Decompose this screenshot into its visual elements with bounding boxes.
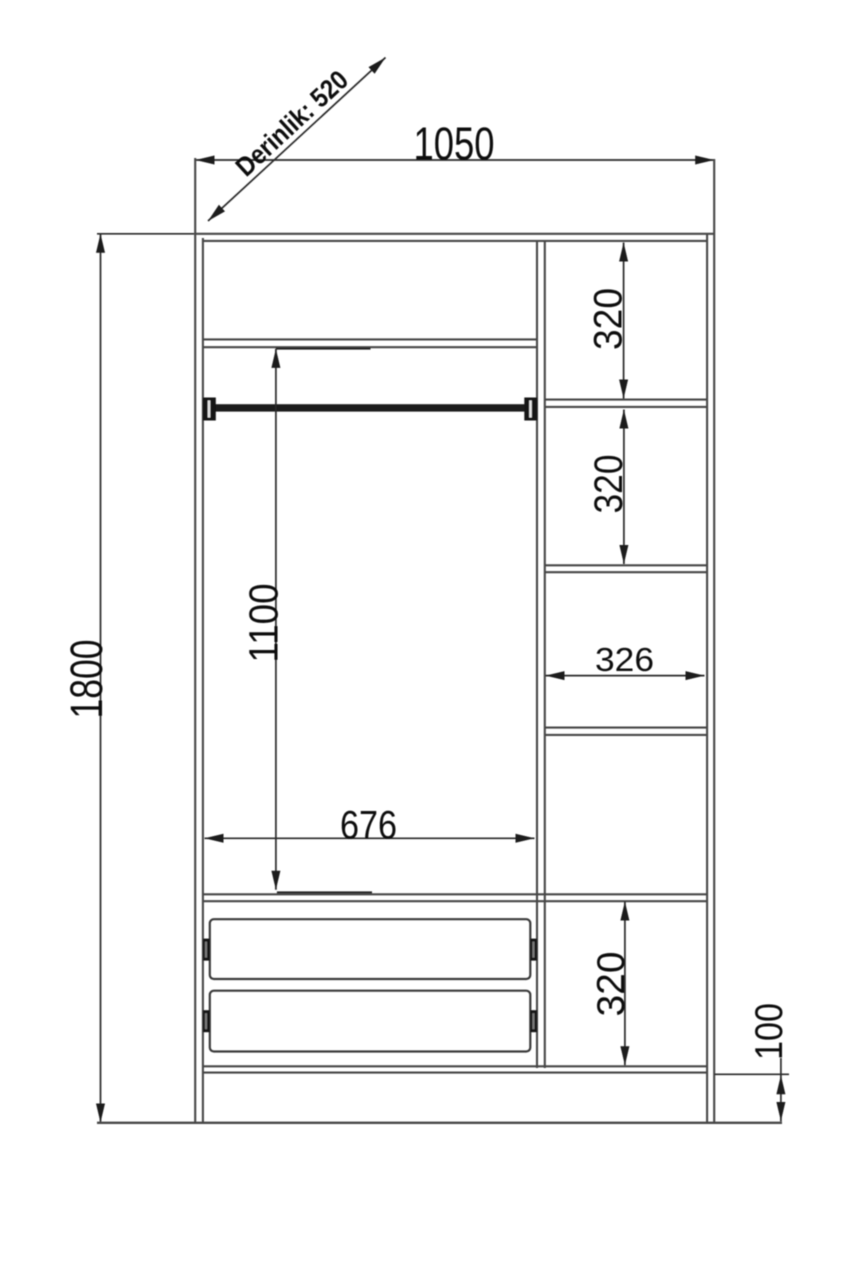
- svg-text:326: 326: [595, 641, 654, 678]
- svg-text:320: 320: [590, 952, 633, 1017]
- svg-text:320: 320: [587, 455, 631, 514]
- svg-text:1100: 1100: [241, 584, 287, 663]
- svg-text:320: 320: [587, 288, 631, 350]
- svg-text:100: 100: [748, 1003, 791, 1060]
- svg-text:1800: 1800: [61, 640, 112, 719]
- svg-text:1050: 1050: [414, 118, 495, 170]
- svg-text:676: 676: [340, 804, 397, 848]
